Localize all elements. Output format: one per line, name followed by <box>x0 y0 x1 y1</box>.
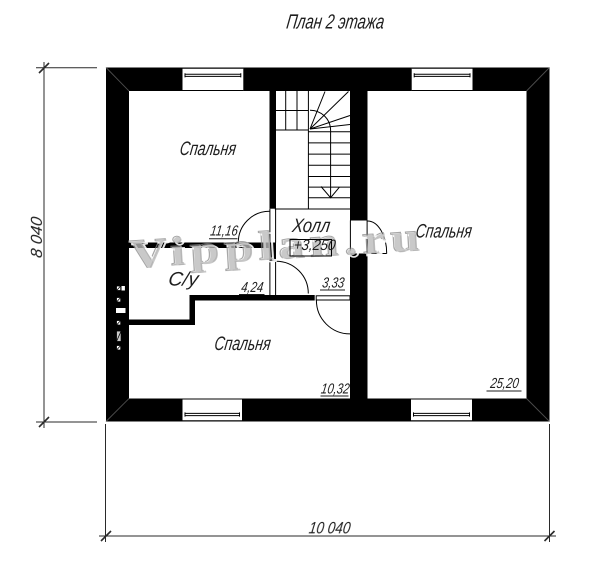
svg-text:Спальня: Спальня <box>414 220 474 242</box>
svg-text:Холл: Холл <box>290 215 332 237</box>
svg-text:10,32: 10,32 <box>320 381 351 397</box>
svg-text:+3,250: +3,250 <box>293 237 338 254</box>
svg-text:Спальня: Спальня <box>213 333 273 355</box>
svg-text:Спальня: Спальня <box>178 138 238 160</box>
svg-text:10 040: 10 040 <box>308 520 353 538</box>
svg-text:С/у: С/у <box>167 268 201 290</box>
svg-text:4,24: 4,24 <box>240 280 264 296</box>
svg-text:3,33: 3,33 <box>321 276 345 292</box>
svg-text:8 040: 8 040 <box>29 216 46 259</box>
svg-text:План 2 этажа: План 2 этажа <box>285 11 386 34</box>
svg-text:11,16: 11,16 <box>209 224 239 240</box>
svg-text:25,20: 25,20 <box>489 376 520 392</box>
